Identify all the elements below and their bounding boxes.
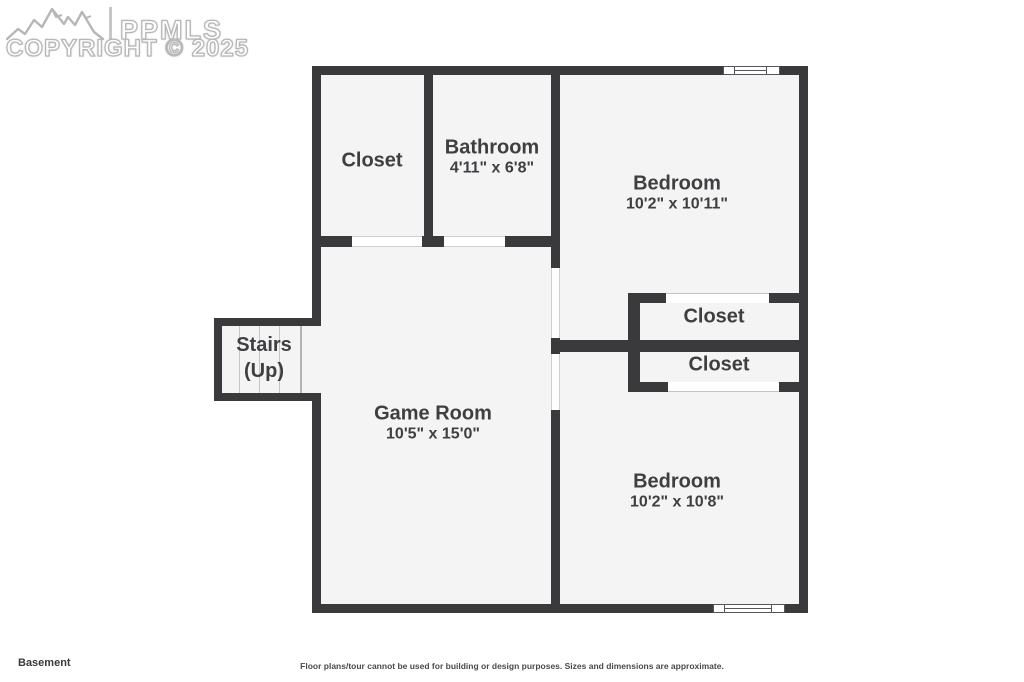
bedroom2-window <box>713 604 785 613</box>
stair-opening-edge <box>300 326 302 393</box>
room-label-bedroom1: Bedroom 10'2" x 10'11" <box>626 173 728 214</box>
floorplan-page: PPMLS COPYRIGHT © 2025 <box>0 0 1024 682</box>
room-label-stairs: Stairs (Up) <box>236 332 292 384</box>
closet2-opening <box>668 382 779 392</box>
closet-tl-name: Closet <box>341 150 402 172</box>
stairs-direction: (Up) <box>236 358 292 384</box>
wall-closet1-top-seg2 <box>769 293 808 303</box>
wall-gameroom-bedrooms-seg1 <box>551 66 560 268</box>
bedroom2-door-opening <box>551 354 560 410</box>
wall-gameroom-bedrooms-seg2 <box>551 410 560 613</box>
window-frame-line <box>724 605 725 612</box>
disclaimer-text: Floor plans/tour cannot be used for buil… <box>0 661 1024 671</box>
window-frame-line <box>766 67 767 74</box>
closet2-name: Closet <box>688 354 749 376</box>
closet1-name: Closet <box>683 306 744 328</box>
bedroom2-dims: 10'2" x 10'8" <box>630 494 724 512</box>
wall-closet-bathroom-divider <box>424 66 433 242</box>
window-frame-line <box>771 605 772 612</box>
wall-hall-top-seg1 <box>312 236 352 247</box>
gameroom-dims: 10'5" x 15'0" <box>374 426 492 444</box>
bedroom1-name: Bedroom <box>626 173 728 196</box>
window-frame-line <box>734 67 735 74</box>
bedroom1-dims: 10'2" x 10'11" <box>626 196 728 214</box>
room-label-bedroom2: Bedroom 10'2" x 10'8" <box>630 471 724 512</box>
window-glass-line <box>725 608 771 609</box>
wall-closet2-bottom-seg2 <box>779 382 808 392</box>
wall-stairs-bottom <box>214 393 321 401</box>
bedroom1-door-opening <box>551 268 560 338</box>
bathroom-door-opening <box>444 236 505 247</box>
wall-outer-left-upper <box>312 66 321 325</box>
bathroom-name: Bathroom <box>445 137 539 160</box>
room-label-bathroom: Bathroom 4'11" x 6'8" <box>445 137 539 178</box>
bathroom-dims: 4'11" x 6'8" <box>445 160 539 178</box>
gameroom-name: Game Room <box>374 403 492 426</box>
wall-closet2-bottom-seg1 <box>628 382 668 392</box>
copyright-text: COPYRIGHT © 2025 <box>6 35 249 63</box>
window-glass-line <box>735 70 766 71</box>
bedroom1-window <box>723 66 780 75</box>
room-label-closet2: Closet <box>688 354 749 377</box>
wall-hall-top-seg2 <box>422 236 444 247</box>
stairs-name: Stairs <box>236 332 292 358</box>
room-label-closet1: Closet <box>683 306 744 329</box>
room-label-gameroom: Game Room 10'5" x 15'0" <box>374 403 492 444</box>
room-label-closet-tl: Closet <box>341 150 402 173</box>
wall-stairs-top <box>214 318 321 326</box>
wall-outer-left-lower <box>312 393 321 613</box>
wall-stairs-left <box>214 318 222 401</box>
bedroom2-name: Bedroom <box>630 471 724 494</box>
closet1-opening <box>666 293 769 303</box>
wall-bedroom-divider <box>551 340 808 352</box>
closet-tl-door-opening <box>352 236 422 247</box>
